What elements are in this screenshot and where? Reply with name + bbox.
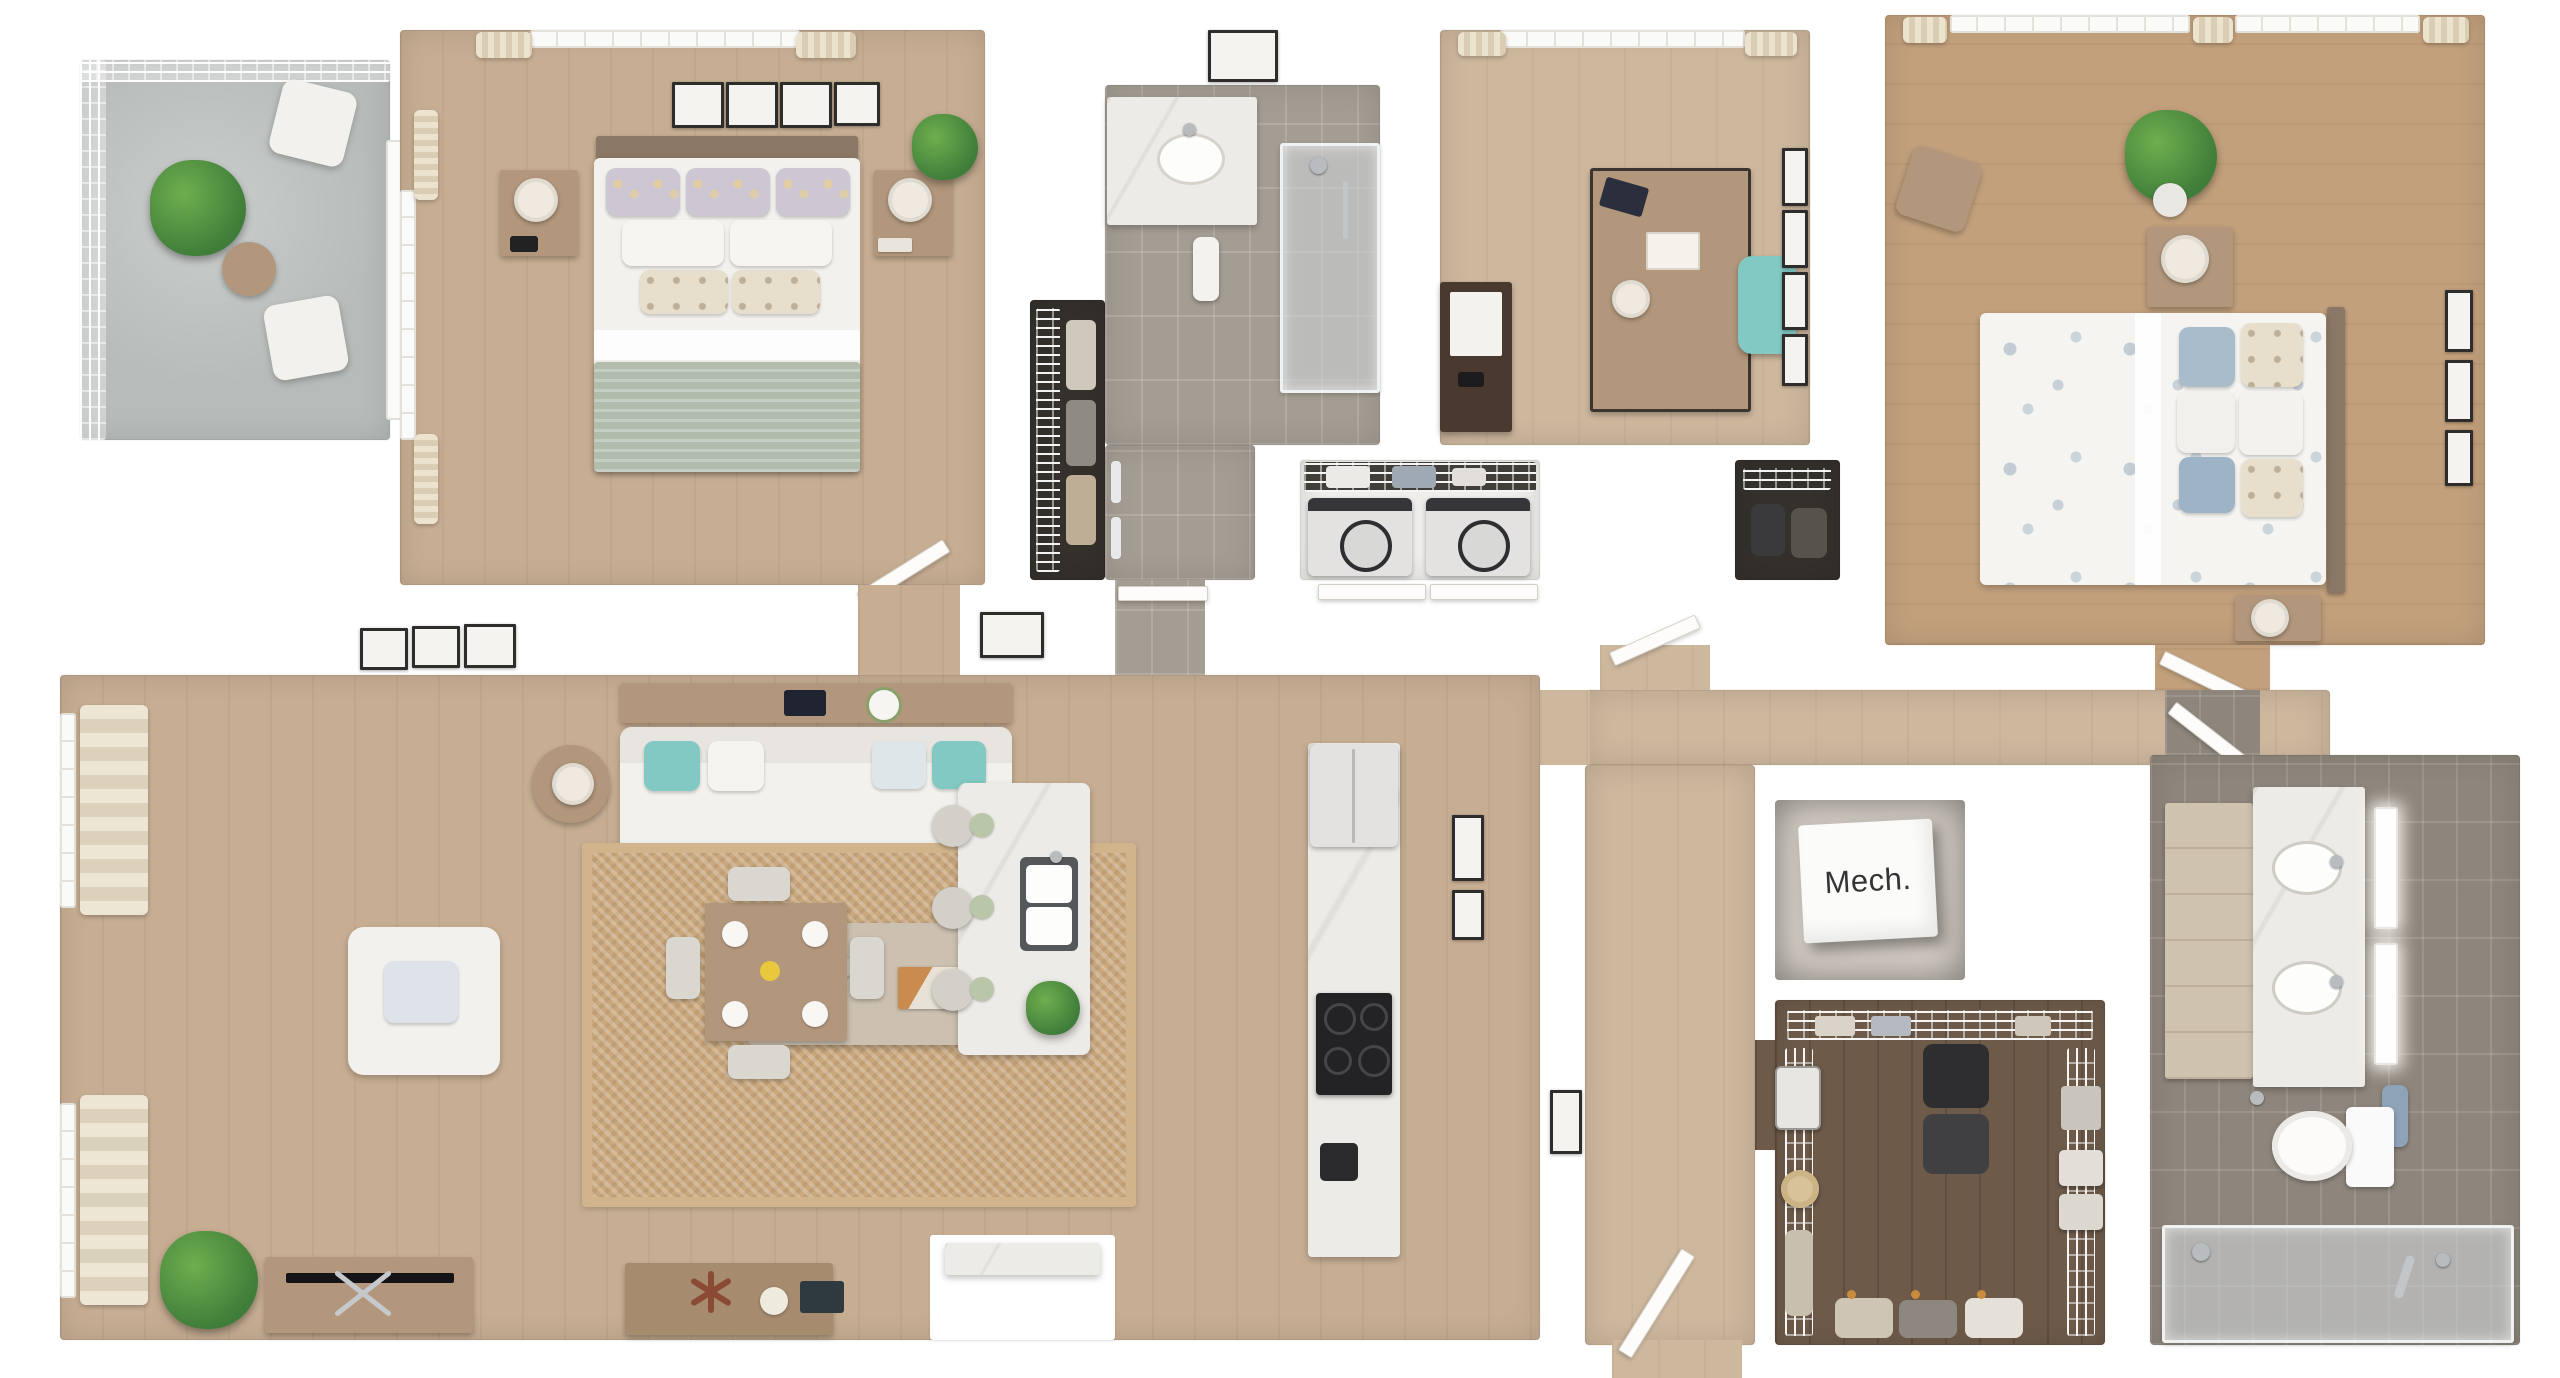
hat [1781, 1170, 1819, 1208]
potted-plant [912, 114, 978, 180]
curtain [796, 32, 856, 58]
open-book [1646, 232, 1700, 270]
bar-stool [932, 887, 974, 929]
pillow [708, 741, 764, 791]
hanging-jackets [1923, 1114, 1989, 1174]
tv [286, 1273, 454, 1283]
towel-bar [1111, 517, 1121, 559]
hanging-bag [1751, 504, 1785, 556]
artwork-frame [1782, 210, 1808, 268]
folded-clothes [1815, 1016, 1855, 1036]
bed-headboard [2327, 307, 2345, 593]
window [60, 1103, 76, 1298]
closet-opening [1755, 1040, 1775, 1150]
dining-chair [666, 937, 700, 999]
laundry-door [1318, 584, 1426, 600]
vanity-sink [1157, 133, 1225, 185]
accent-pillow [640, 270, 728, 314]
hanging-clothes [1066, 400, 1096, 466]
bed-headboard [596, 136, 858, 160]
bed-sheet-fold [2135, 313, 2161, 585]
teal-pillow [932, 741, 986, 789]
artwork-frame [2445, 360, 2473, 422]
artwork-frame [1782, 334, 1808, 386]
sink-basin [1026, 865, 1072, 903]
accent-pillow [732, 270, 820, 314]
dryer [1426, 498, 1530, 576]
hanging-clothes [1066, 320, 1096, 390]
curtain [2423, 17, 2469, 43]
washer-lid [1340, 520, 1392, 572]
decor-star [708, 1271, 714, 1313]
primary-bedroom [400, 30, 985, 585]
balcony-railing [80, 60, 106, 440]
shower-head [1310, 157, 1327, 174]
plate [722, 1001, 748, 1027]
window [530, 30, 800, 48]
mechanical-unit: Mech. [1798, 819, 1938, 944]
balcony-railing-top [80, 60, 390, 82]
dining-chair [850, 937, 884, 999]
accent-pillow [2241, 459, 2303, 517]
artwork-frame [1782, 148, 1808, 206]
burner [1360, 1003, 1388, 1031]
wire-shelf [1036, 308, 1060, 572]
double-vanity [2253, 787, 2365, 1087]
table-lamp [2251, 599, 2289, 637]
foyer [1585, 765, 1755, 1345]
dining-chair [728, 1045, 790, 1079]
shoes [1452, 468, 1486, 486]
decor-tray [800, 1281, 844, 1313]
toilet-tank [2346, 1107, 2394, 1187]
window [1500, 30, 1745, 48]
hanging-jackets [1923, 1044, 1989, 1108]
table-lamp [2161, 235, 2209, 283]
washer-control-panel [1308, 498, 1412, 511]
apartment-unit: Mech. [0, 0, 2560, 1378]
bathroom-1-hall [1105, 445, 1255, 580]
sink-basin [1026, 907, 1072, 945]
floorplan-3d-render: Mech. [0, 0, 2560, 1378]
hanging-towel [1193, 237, 1219, 301]
potted-plant [160, 1231, 258, 1329]
toilet-bowl [2272, 1111, 2352, 1181]
curtain [476, 32, 532, 58]
walk-in-shower [1280, 143, 1380, 393]
blue-pillow [2179, 327, 2235, 387]
plate [722, 921, 748, 947]
vanity-sink [2272, 961, 2342, 1015]
balcony [80, 60, 390, 440]
flower-centerpiece [760, 961, 780, 981]
artwork-frame [412, 626, 460, 668]
artwork-frame [672, 82, 724, 128]
towel-bar [1111, 461, 1121, 503]
artwork-frame [464, 624, 516, 668]
burner [1324, 1047, 1352, 1075]
faucet [2330, 855, 2343, 868]
shower-bar [1343, 181, 1348, 239]
hallway-opening [1540, 690, 1590, 765]
faucet [2330, 975, 2343, 988]
pillow [686, 168, 770, 216]
burner [1358, 1045, 1390, 1077]
artwork-frame [1782, 272, 1808, 330]
hanging-clothes [1899, 1300, 1957, 1338]
pillow [622, 220, 724, 266]
table-lamp [552, 763, 594, 805]
roman-shade [80, 1095, 148, 1305]
storage-basket [1326, 466, 1370, 488]
shower-control [2436, 1253, 2450, 1267]
hanger [1977, 1290, 1986, 1299]
window [2235, 15, 2420, 33]
artwork-frame [834, 82, 880, 126]
faucet [1183, 123, 1196, 136]
bedroom-2 [1885, 15, 2485, 645]
pillow [730, 220, 832, 266]
shower [2162, 1225, 2514, 1343]
flower-vase [866, 687, 902, 723]
faucet [1050, 851, 1062, 863]
folded-clothes [1871, 1016, 1911, 1036]
patterned-pillow [384, 961, 458, 1023]
laundry-door [1430, 584, 1538, 600]
storage-box [2059, 1150, 2103, 1186]
artwork-frame [2445, 430, 2473, 486]
window [60, 713, 76, 908]
toilet-paper-holder [2250, 1091, 2264, 1105]
planter-pot [2153, 183, 2187, 217]
artwork-frame [1452, 890, 1484, 940]
pillow [2239, 391, 2303, 455]
curtain [1903, 17, 1947, 43]
dryer-lid [1458, 520, 1510, 572]
artwork-frame [360, 628, 408, 670]
dryer-control-panel [1426, 498, 1530, 511]
window [400, 190, 416, 440]
bar-stool [932, 969, 974, 1011]
patio-chair [262, 294, 350, 382]
storage-basket [1392, 466, 1436, 488]
artwork-frame [780, 82, 832, 128]
suitcase [1775, 1066, 1821, 1130]
books [878, 238, 912, 252]
table-lamp [514, 178, 558, 222]
refrigerator-door-line [1352, 749, 1355, 843]
hanger [1847, 1290, 1856, 1299]
hall-closet [1735, 460, 1840, 580]
table-lamp [888, 178, 932, 222]
mech-label: Mech. [1824, 861, 1913, 901]
hanging-bag [1791, 508, 1827, 558]
artwork-frame [726, 82, 778, 128]
desk-lamp [1612, 280, 1650, 318]
patio-chair [267, 77, 359, 169]
bar-stool [932, 805, 974, 847]
folded-clothes [2061, 1086, 2101, 1130]
roman-shade [80, 705, 148, 915]
pocket-door [1118, 586, 1208, 601]
place-setting [970, 813, 994, 837]
curtain [1458, 32, 1506, 56]
place-setting [970, 895, 994, 919]
bed-throw-blanket [594, 362, 860, 472]
hanging-clothes [1066, 475, 1096, 545]
curtain [2193, 17, 2233, 43]
living-dining-kitchen [60, 675, 1540, 1340]
cabinet-panel [1450, 292, 1502, 356]
bathroom-cabinets [2165, 803, 2253, 1079]
walk-in-closet-1 [1030, 300, 1105, 580]
phone [1458, 372, 1484, 387]
plate [802, 921, 828, 947]
curtain [414, 434, 438, 524]
pillow [2177, 391, 2235, 453]
accent-pillow [2241, 323, 2303, 387]
burner [1324, 1003, 1356, 1035]
artwork-frame [1208, 30, 1278, 82]
lighted-mirror [2374, 943, 2398, 1065]
hanging-clothes [1835, 1298, 1893, 1338]
folded-clothes [2015, 1016, 2051, 1036]
curtain [1745, 32, 1797, 56]
blue-pillow [2179, 457, 2235, 513]
pillow [872, 741, 926, 789]
bathroom-1 [1105, 85, 1380, 445]
vanity-sink [2272, 841, 2342, 895]
mech-closet: Mech. [1775, 800, 1965, 980]
artwork-frame [1550, 1090, 1582, 1154]
washer [1308, 498, 1412, 576]
plate [802, 1001, 828, 1027]
bathroom-2 [2150, 755, 2520, 1345]
pillow [606, 168, 680, 216]
bed-sheet-fold [594, 330, 860, 360]
coffee-maker [1320, 1143, 1358, 1181]
phone [510, 236, 538, 252]
decor-sphere [760, 1287, 788, 1315]
dining-chair [728, 867, 790, 901]
wooden-chair [1894, 144, 1985, 235]
door-opening [858, 585, 960, 675]
wire-shelf [1743, 468, 1831, 490]
shower-drain [2192, 1243, 2210, 1261]
hanger [1911, 1290, 1920, 1299]
patio-table [222, 242, 276, 296]
curtain [414, 110, 438, 200]
artwork-frame [1452, 815, 1484, 881]
hanging-clothes [1965, 1298, 2023, 1338]
storage-box [2059, 1194, 2103, 1230]
potted-plant [150, 160, 246, 256]
pillow [776, 168, 850, 216]
lighted-mirror [2374, 807, 2398, 929]
walk-in-closet-2 [1775, 1000, 2105, 1345]
window [1950, 15, 2190, 33]
island-plant [1026, 981, 1080, 1035]
hanging-clothes [1785, 1230, 1813, 1316]
artwork-frame [980, 612, 1044, 658]
teal-pillow [644, 741, 700, 791]
laundry-closet [1300, 460, 1540, 580]
artwork-frame [2445, 290, 2473, 352]
counter-return [945, 1243, 1100, 1275]
place-setting [970, 977, 994, 1001]
office [1440, 30, 1810, 445]
tablet [784, 690, 826, 716]
